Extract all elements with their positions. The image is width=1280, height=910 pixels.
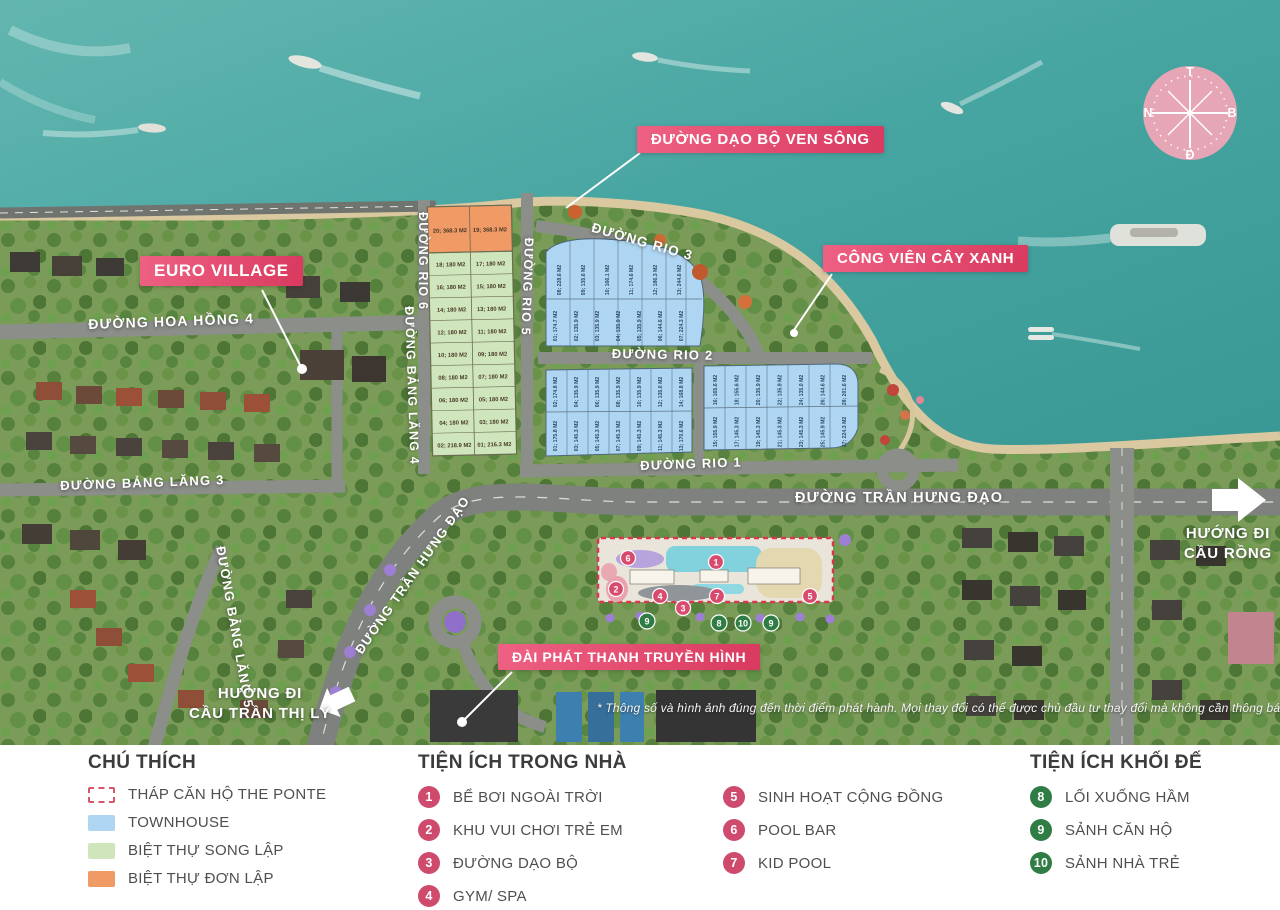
legend-amenity-item: 7 KID POOL xyxy=(723,852,943,874)
svg-text:11; 180 M2: 11; 180 M2 xyxy=(477,329,506,336)
svg-text:9: 9 xyxy=(644,617,649,627)
svg-text:07; 180 M2: 07; 180 M2 xyxy=(478,374,507,381)
svg-text:07; 145.3 M2: 07; 145.3 M2 xyxy=(616,421,622,452)
legend-amenity-item: 6 POOL BAR xyxy=(723,819,943,841)
direction-line: HƯỚNG ĐI xyxy=(1178,524,1278,544)
svg-text:12; 180 M2: 12; 180 M2 xyxy=(437,330,466,337)
amenity-number-badge: 2 xyxy=(418,819,440,841)
direction-tran-thi-ly-bridge: HƯỚNG ĐI CẦU TRẦN THỊ LÝ xyxy=(165,684,355,723)
legend-indoor-2: 5 SINH HOẠT CỘNG ĐỒNG 6 POOL BAR 7 KID P… xyxy=(723,786,943,885)
legend-amenity-item: 5 SINH HOẠT CỘNG ĐỒNG xyxy=(723,786,943,808)
svg-text:11; 174.6 M2: 11; 174.6 M2 xyxy=(629,265,635,295)
song-lap-swatch xyxy=(88,843,115,859)
svg-text:03; 180 M2: 03; 180 M2 xyxy=(479,419,508,426)
legend-item-song-lap: BIỆT THỰ SONG LẬP xyxy=(88,842,326,859)
legend-item-label: BỂ BƠI NGOÀI TRỜI xyxy=(453,789,603,806)
svg-text:2: 2 xyxy=(613,585,618,595)
legend-item-label: BIỆT THỰ SONG LẬP xyxy=(128,842,284,859)
callout-park: CÔNG VIÊN CÂY XANH xyxy=(823,245,1028,272)
svg-text:17; 145.3 M2: 17; 145.3 M2 xyxy=(735,417,741,448)
svg-text:13; 180 M2: 13; 180 M2 xyxy=(477,306,506,313)
legend-item-label: LỐI XUỐNG HẦM xyxy=(1065,789,1190,806)
svg-text:17; 180 M2: 17; 180 M2 xyxy=(476,261,505,268)
amenity-number-badge: 9 xyxy=(1030,819,1052,841)
svg-text:4: 4 xyxy=(657,592,662,602)
legend-item-don-lap: BIỆT THỰ ĐƠN LẬP xyxy=(88,870,326,887)
legend-item-label: SẢNH NHÀ TRẺ xyxy=(1065,855,1180,872)
svg-text:02; 174.8 M2: 02; 174.8 M2 xyxy=(553,377,559,408)
callout-radio-station: ĐÀI PHÁT THANH TRUYỀN HÌNH xyxy=(498,644,760,670)
svg-text:23; 145.3 M2: 23; 145.3 M2 xyxy=(799,417,805,448)
svg-text:13; 170.6 M2: 13; 170.6 M2 xyxy=(679,421,685,452)
svg-text:06; 180 M2: 06; 180 M2 xyxy=(439,398,468,405)
amenity-number-badge: 3 xyxy=(418,852,440,874)
compass-top: T xyxy=(1186,65,1194,79)
svg-text:05; 145.3 M2: 05; 145.3 M2 xyxy=(595,421,601,452)
amenity-number-badge: 8 xyxy=(1030,786,1052,808)
callout-euro-village: EURO VILLAGE xyxy=(140,256,303,286)
svg-text:9: 9 xyxy=(768,619,773,629)
svg-text:10; 180 M2: 10; 180 M2 xyxy=(438,353,467,360)
svg-text:04; 135.9 M2: 04; 135.9 M2 xyxy=(616,311,622,342)
svg-text:20; 135.9 M2: 20; 135.9 M2 xyxy=(756,375,762,406)
svg-text:8: 8 xyxy=(716,619,721,629)
legend-item-label: BIỆT THỰ ĐƠN LẬP xyxy=(128,870,274,887)
compass-left: N xyxy=(1143,106,1152,120)
svg-text:01; 175.8 M2: 01; 175.8 M2 xyxy=(553,421,559,452)
road-rio-6: ĐƯỜNG RIO 6 xyxy=(416,212,430,310)
legend-podium: TIỆN ÍCH KHỐI ĐẾ 8 LỐI XUỐNG HẦM 9 SẢNH … xyxy=(1030,752,1202,885)
road-rio-2: ĐƯỜNG RIO 2 xyxy=(612,346,714,363)
direction-line: CẦU RỒNG xyxy=(1178,544,1278,564)
svg-text:03; 145.3 M2: 03; 145.3 M2 xyxy=(574,421,580,452)
legend-item-label: SINH HOẠT CỘNG ĐỒNG xyxy=(758,789,943,806)
svg-text:27; 224.3 M2: 27; 224.3 M2 xyxy=(842,417,848,448)
legend-title: TIỆN ÍCH KHỐI ĐẾ xyxy=(1030,752,1202,774)
legend-indoor-list-1: 1 BỂ BƠI NGOÀI TRỜI 2 KHU VUI CHƠI TRẺ E… xyxy=(418,786,627,907)
svg-text:25; 145.9 M2: 25; 145.9 M2 xyxy=(821,417,827,448)
legend-item-label: TOWNHOUSE xyxy=(128,814,230,831)
svg-text:16; 180 M2: 16; 180 M2 xyxy=(436,285,465,292)
amenity-number-badge: 6 xyxy=(723,819,745,841)
legend-amenity-item: 1 BỂ BƠI NGOÀI TRỜI xyxy=(418,786,627,808)
svg-text:06; 144.6 M2: 06; 144.6 M2 xyxy=(658,311,664,342)
svg-text:26; 144.6 M2: 26; 144.6 M2 xyxy=(821,375,827,406)
callout-walkway: ĐƯỜNG DẠO BỘ VEN SÔNG xyxy=(637,126,884,153)
svg-text:05; 135.9 M2: 05; 135.9 M2 xyxy=(637,311,643,342)
legend-item-label: KID POOL xyxy=(758,855,831,872)
svg-text:11; 145.3 M2: 11; 145.3 M2 xyxy=(658,421,664,451)
tower-swatch xyxy=(88,787,115,803)
legend-item-tower: THÁP CĂN HỘ THE PONTE xyxy=(88,786,326,803)
svg-text:08; 228.6 M2: 08; 228.6 M2 xyxy=(557,265,563,296)
amenity-number-badge: 5 xyxy=(723,786,745,808)
legend-item-townhouse: TOWNHOUSE xyxy=(88,814,326,831)
villa-block: 20; 368.3 M2 19; 368.3 M2 18; 180 M216; … xyxy=(427,205,516,456)
svg-text:09; 145.3 M2: 09; 145.3 M2 xyxy=(637,421,643,452)
svg-text:15; 180 M2: 15; 180 M2 xyxy=(476,284,505,291)
legend-podium-list: 8 LỐI XUỐNG HẦM 9 SẢNH CĂN HỘ 10 SẢNH NH… xyxy=(1030,786,1202,874)
svg-text:05; 180 M2: 05; 180 M2 xyxy=(479,397,508,404)
amenity-number-badge: 10 xyxy=(1030,852,1052,874)
legend-item-label: KHU VUI CHƠI TRẺ EM xyxy=(453,822,623,839)
legend-indoor-list-2: 5 SINH HOẠT CỘNG ĐỒNG 6 POOL BAR 7 KID P… xyxy=(723,786,943,874)
legend-amenity-item: 10 SẢNH NHÀ TRẺ xyxy=(1030,852,1202,874)
compass-right: B xyxy=(1227,106,1236,120)
townhouse-swatch xyxy=(88,815,115,831)
legend-amenity-item: 4 GYM/ SPA xyxy=(418,885,627,907)
svg-text:12; 186.3 M2: 12; 186.3 M2 xyxy=(653,265,659,296)
svg-text:14; 180 M2: 14; 180 M2 xyxy=(437,307,466,314)
svg-text:13; 244.6 M2: 13; 244.6 M2 xyxy=(677,265,683,296)
svg-text:04; 180 M2: 04; 180 M2 xyxy=(439,420,468,427)
legend-item-label: GYM/ SPA xyxy=(453,888,527,905)
amenity-number-badge: 7 xyxy=(723,852,745,874)
svg-text:02; 135.9 M2: 02; 135.9 M2 xyxy=(574,311,580,342)
legend-indoor: TIỆN ÍCH TRONG NHÀ 1 BỂ BƠI NGOÀI TRỜI 2… xyxy=(418,752,627,910)
svg-text:21; 145.3 M2: 21; 145.3 M2 xyxy=(778,417,784,448)
road-tran-hung-dao-east: ĐƯỜNG TRẦN HƯNG ĐẠO xyxy=(795,490,1003,506)
legend-amenity-item: 9 SẢNH CĂN HỘ xyxy=(1030,819,1202,841)
direction-dragon-bridge: HƯỚNG ĐI CẦU RỒNG xyxy=(1178,524,1278,563)
svg-text:04; 135.9 M2: 04; 135.9 M2 xyxy=(574,377,580,408)
legend-title: TIỆN ÍCH TRONG NHÀ xyxy=(418,752,627,774)
masterplan-map: 20; 368.3 M2 19; 368.3 M2 18; 180 M216; … xyxy=(0,0,1280,745)
svg-text:5: 5 xyxy=(807,592,812,602)
svg-text:03; 135.9 M2: 03; 135.9 M2 xyxy=(595,311,601,342)
svg-text:10; 166.1 M2: 10; 166.1 M2 xyxy=(605,265,611,296)
svg-text:09; 135.6 M2: 09; 135.6 M2 xyxy=(581,265,587,296)
svg-text:08; 135.9 M2: 08; 135.9 M2 xyxy=(616,377,622,408)
svg-text:28; 201.6 M2: 28; 201.6 M2 xyxy=(842,375,848,406)
svg-text:1: 1 xyxy=(713,558,718,568)
svg-text:18; 180 M2: 18; 180 M2 xyxy=(436,262,465,269)
svg-text:14; 168.8 M2: 14; 168.8 M2 xyxy=(679,377,685,408)
svg-text:10; 135.9 M2: 10; 135.9 M2 xyxy=(637,377,643,408)
svg-text:06; 135.9 M2: 06; 135.9 M2 xyxy=(595,377,601,408)
lot-label: 19; 368.3 M2 xyxy=(473,227,507,234)
svg-text:16; 165.6 M2: 16; 165.6 M2 xyxy=(713,375,719,406)
svg-text:24; 135.0 M2: 24; 135.0 M2 xyxy=(799,375,805,406)
svg-text:10: 10 xyxy=(738,619,748,629)
map-artwork: 20; 368.3 M2 19; 368.3 M2 18; 180 M216; … xyxy=(0,0,1280,745)
svg-text:3: 3 xyxy=(680,604,685,614)
legend-title: CHÚ THÍCH xyxy=(88,752,326,774)
direction-line: HƯỚNG ĐI xyxy=(165,684,355,704)
legend-amenity-item: 3 ĐƯỜNG DẠO BỘ xyxy=(418,852,627,874)
svg-text:07; 224.3 M2: 07; 224.3 M2 xyxy=(679,311,685,342)
svg-text:18; 155.6 M2: 18; 155.6 M2 xyxy=(735,375,741,406)
svg-text:19; 145.3 M2: 19; 145.3 M2 xyxy=(756,417,762,448)
svg-text:12; 135.0 M2: 12; 135.0 M2 xyxy=(658,377,664,408)
legend-amenity-item: 2 KHU VUI CHƠI TRẺ EM xyxy=(418,819,627,841)
don-lap-swatch xyxy=(88,871,115,887)
amenity-number-badge: 4 xyxy=(418,885,440,907)
svg-text:09; 180 M2: 09; 180 M2 xyxy=(478,352,507,359)
disclaimer-text: * Thông số và hình ảnh đúng đến thời điể… xyxy=(597,701,1280,715)
masterplan-page: 20; 368.3 M2 19; 368.3 M2 18; 180 M216; … xyxy=(0,0,1280,910)
svg-text:15; 155.9 M2: 15; 155.9 M2 xyxy=(713,417,719,448)
svg-text:01; 174.7 M2: 01; 174.7 M2 xyxy=(553,311,559,342)
svg-text:02; 218.9 M2: 02; 218.9 M2 xyxy=(437,443,471,450)
svg-text:22; 135.9 M2: 22; 135.9 M2 xyxy=(778,375,784,406)
svg-text:01; 216.3 M2: 01; 216.3 M2 xyxy=(477,442,511,449)
svg-text:7: 7 xyxy=(714,592,719,602)
legend-amenity-item: 8 LỐI XUỐNG HẦM xyxy=(1030,786,1202,808)
legend-item-label: THÁP CĂN HỘ THE PONTE xyxy=(128,786,326,803)
direction-line: CẦU TRẦN THỊ LÝ xyxy=(165,704,355,724)
legend-chu-thich: CHÚ THÍCH THÁP CĂN HỘ THE PONTE TOWNHOUS… xyxy=(88,752,326,898)
legend-item-label: SẢNH CĂN HỘ xyxy=(1065,822,1172,839)
legend-item-label: POOL BAR xyxy=(758,822,837,839)
legend-item-label: ĐƯỜNG DẠO BỘ xyxy=(453,855,578,872)
lot-label: 20; 368.3 M2 xyxy=(433,228,467,235)
amenity-number-badge: 1 xyxy=(418,786,440,808)
svg-text:08; 180 M2: 08; 180 M2 xyxy=(438,375,467,382)
svg-text:6: 6 xyxy=(625,554,630,564)
compass-bottom: Đ xyxy=(1185,148,1194,162)
